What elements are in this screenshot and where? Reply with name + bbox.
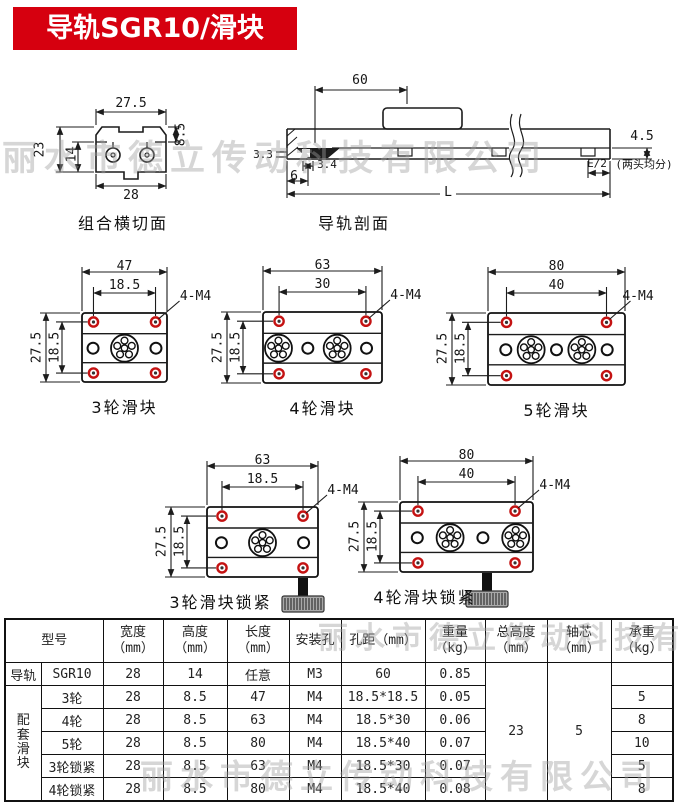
- cell: 18.5*40: [341, 778, 425, 802]
- cell: 18.5*18.5: [341, 686, 425, 709]
- slider-2-inner-height-dim: 18.5: [455, 329, 468, 369]
- dim-cross-width-bottom: 28: [104, 189, 158, 202]
- dim-rail-end-note: (两头均分): [611, 159, 677, 170]
- dim-cross-width-top: 27.5: [104, 97, 158, 110]
- cell: 5轮: [41, 732, 103, 755]
- cell: M4: [289, 686, 341, 709]
- slider-3-inner-height-dim: 18.5: [174, 522, 187, 562]
- rail-break-line: [509, 114, 514, 177]
- cell: M4: [289, 755, 341, 778]
- dim-rail-length: L: [440, 186, 456, 199]
- slider-1-inner-dim: 30: [293, 278, 353, 291]
- slider-0-inner-height-dim: 18.5: [49, 327, 62, 367]
- cell: 8.5: [163, 732, 227, 755]
- col-header-6: 重量（kg）: [425, 619, 485, 663]
- rail-slot: [581, 148, 595, 156]
- cell-load: 8: [611, 778, 673, 802]
- slider-0-outer-dim: 47: [95, 260, 155, 273]
- cell: 28: [103, 755, 163, 778]
- dim-rail-end-span: E/2: [583, 158, 611, 169]
- slider-4-outer-dim: 80: [437, 449, 497, 462]
- col-header-label: 承重: [612, 625, 673, 641]
- slider-1-caption: 4轮滑块: [263, 395, 383, 419]
- cell: M4: [289, 732, 341, 755]
- slider-0-caption: 3轮滑块: [65, 394, 185, 418]
- slider-3-caption: 3轮滑块锁紧: [161, 589, 281, 613]
- slider-1-outer-dim: 63: [293, 259, 353, 272]
- dim-rail-lip-height: 4.5: [620, 130, 664, 143]
- cell: 80: [227, 732, 289, 755]
- col-header-unit: （kg）: [426, 641, 485, 657]
- page: { "title": "导轨SGR10/滑块SGB10", "watermark…: [0, 0, 678, 800]
- row-group-1: 配套滑块: [5, 686, 41, 802]
- spec-table-head: 型号宽度（mm）高度（mm）长度（mm）安装孔孔距（mm）重量（kg）总高度（m…: [5, 619, 673, 663]
- table-row: 导轨SGR102814任意M3600.85235: [5, 663, 673, 686]
- cell: 28: [103, 686, 163, 709]
- slider-0-height-dim: 27.5: [31, 327, 44, 367]
- slider-2-inner-dim: 40: [527, 279, 587, 292]
- cell: 8.5: [163, 778, 227, 802]
- slider-3-inner-dim: 18.5: [233, 473, 293, 486]
- merged-total-height: 23: [485, 663, 547, 802]
- cell-load: 10: [611, 732, 673, 755]
- cell: 8.5: [163, 686, 227, 709]
- col-header-5: 孔距（mm）: [341, 619, 425, 663]
- col-header-label: 高度: [164, 625, 227, 641]
- cell: 0.07: [425, 755, 485, 778]
- cell: 63: [227, 755, 289, 778]
- dim-rail-hole-width: 3.4: [314, 159, 340, 170]
- cell: 4轮锁紧: [41, 778, 103, 802]
- col-header-4: 安装孔: [289, 619, 341, 663]
- cell: 18.5*30: [341, 709, 425, 732]
- col-header-3: 长度（mm）: [227, 619, 289, 663]
- cell: 28: [103, 732, 163, 755]
- cell: M3: [289, 663, 341, 686]
- cell: 3轮: [41, 686, 103, 709]
- dim-rail-hole-pitch: 60: [338, 74, 382, 87]
- slider-1-inner-height-dim: 18.5: [230, 327, 243, 367]
- cell: 14: [163, 663, 227, 686]
- cell: 80: [227, 778, 289, 802]
- cross-section-caption: 组合横切面: [78, 210, 168, 234]
- col-header-1: 宽度（mm）: [103, 619, 163, 663]
- col-header-unit: （kg）: [612, 641, 673, 657]
- slider-4-inner-height-dim: 18.5: [367, 517, 380, 557]
- col-header-unit: （mm）: [228, 641, 289, 657]
- cell: 4轮: [41, 709, 103, 732]
- cross-roller-left: [106, 148, 120, 162]
- rail-slot: [492, 148, 506, 156]
- cell: 0.07: [425, 732, 485, 755]
- cell: 0.06: [425, 709, 485, 732]
- dim-rail-counterbore: 3.3: [250, 149, 276, 160]
- spec-table-body: 导轨SGR102814任意M3600.85235配套滑块3轮288.547M41…: [5, 663, 673, 802]
- cell-load: [611, 663, 673, 686]
- col-header-label: 型号: [6, 633, 103, 649]
- cell-load: 8: [611, 709, 673, 732]
- cell: M4: [289, 778, 341, 802]
- col-header-label: 安装孔: [290, 633, 341, 649]
- col-header-9: 承重（kg）: [611, 619, 673, 663]
- cell: 3轮锁紧: [41, 755, 103, 778]
- cell: 60: [341, 663, 425, 686]
- rail-slot: [398, 148, 412, 156]
- cell: 任意: [227, 663, 289, 686]
- slider-2-thread: 4-M4: [612, 290, 664, 303]
- col-header-label: 宽度: [104, 625, 163, 641]
- col-header-unit: （mm）: [486, 641, 547, 657]
- cell: 18.5*30: [341, 755, 425, 778]
- cell: 47: [227, 686, 289, 709]
- col-header-0: 型号: [5, 619, 103, 663]
- col-header-unit: （mm）: [164, 641, 227, 657]
- cross-roller-right: [140, 148, 154, 162]
- cell: SGR10: [41, 663, 103, 686]
- cell: 28: [103, 709, 163, 732]
- generated-line-work: [40, 86, 652, 612]
- slider-4-caption: 4轮滑块锁紧: [365, 584, 485, 608]
- col-header-2: 高度（mm）: [163, 619, 227, 663]
- cell: 0.05: [425, 686, 485, 709]
- rail-break-line: [518, 114, 523, 177]
- rail-slider-block: [383, 108, 462, 129]
- cell: 28: [103, 778, 163, 802]
- col-header-label: 孔距（mm）: [342, 633, 425, 649]
- cell: 28: [103, 663, 163, 686]
- cell: M4: [289, 709, 341, 732]
- row-group-0: 导轨: [5, 663, 41, 686]
- cell: 0.08: [425, 778, 485, 802]
- cell: 18.5*40: [341, 732, 425, 755]
- rail-section-caption: 导轨剖面: [318, 210, 390, 234]
- col-header-label: 总高度: [486, 625, 547, 641]
- slider-2-outer-dim: 80: [527, 260, 587, 273]
- slider-3-height-dim: 27.5: [156, 522, 169, 562]
- slider-1-height-dim: 27.5: [212, 327, 225, 367]
- spec-table: 型号宽度（mm）高度（mm）长度（mm）安装孔孔距（mm）重量（kg）总高度（m…: [4, 618, 674, 802]
- col-header-label: 重量: [426, 625, 485, 641]
- col-header-7: 总高度（mm）: [485, 619, 547, 663]
- cell-load: 5: [611, 755, 673, 778]
- cell: 63: [227, 709, 289, 732]
- slider-1-thread: 4-M4: [380, 289, 432, 302]
- col-header-8: 轴芯（mm）: [547, 619, 611, 663]
- slider-4-height-dim: 27.5: [349, 517, 362, 557]
- dim-rail-edge-offset: 6: [286, 170, 302, 183]
- col-header-unit: （mm）: [548, 641, 611, 657]
- slider-0-thread: 4-M4: [170, 290, 222, 303]
- slider-4-thread: 4-M4: [529, 479, 581, 492]
- slider-3-outer-dim: 63: [233, 454, 293, 467]
- cell-load: 5: [611, 686, 673, 709]
- dim-cross-height-right: 8.5: [175, 115, 188, 155]
- slider-0-inner-dim: 18.5: [95, 279, 155, 292]
- cell: 8.5: [163, 709, 227, 732]
- col-header-unit: （mm）: [104, 641, 163, 657]
- col-header-label: 轴芯: [548, 625, 611, 641]
- dim-cross-height-inner: 14: [66, 135, 79, 175]
- cell: 8.5: [163, 755, 227, 778]
- col-header-label: 长度: [228, 625, 289, 641]
- merged-shaft-core: 5: [547, 663, 611, 802]
- cross-section-figure: [96, 127, 166, 179]
- slider-3-thread: 4-M4: [317, 484, 369, 497]
- cell: 0.85: [425, 663, 485, 686]
- dim-cross-height-outer: 23: [34, 130, 47, 170]
- slider-4-inner-dim: 40: [437, 468, 497, 481]
- slider-2-height-dim: 27.5: [437, 329, 450, 369]
- slider-2-caption: 5轮滑块: [497, 397, 617, 421]
